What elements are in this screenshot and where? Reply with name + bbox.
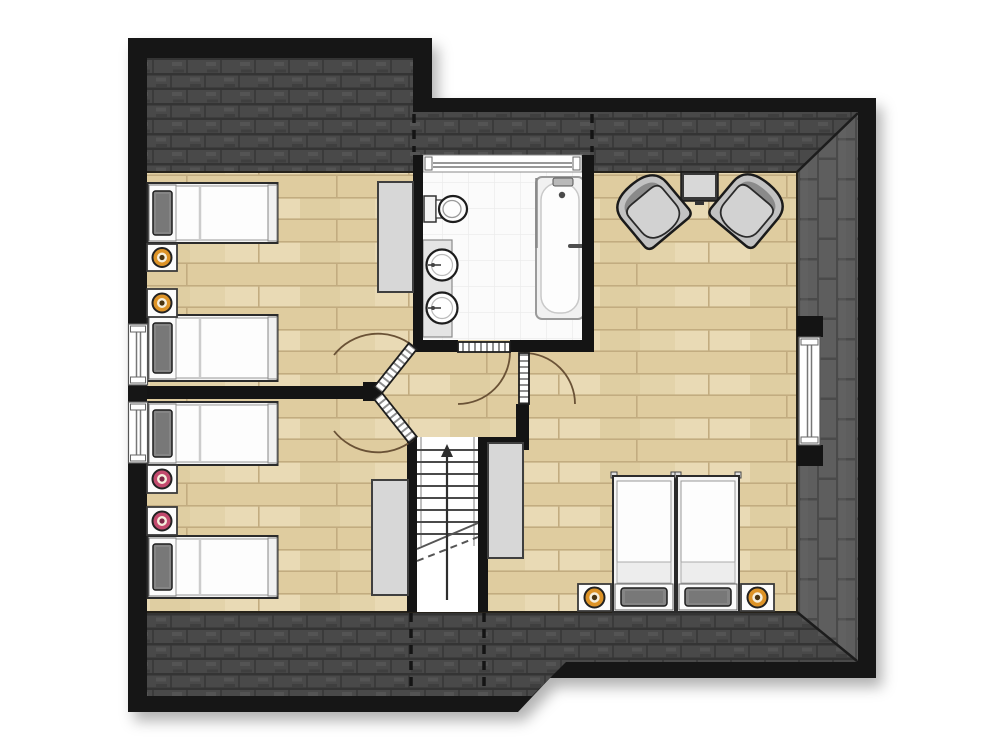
left-window-1 xyxy=(129,324,148,385)
stairwell-wall-right xyxy=(478,437,488,612)
tv-on-stand xyxy=(681,172,718,205)
single-bed-3 xyxy=(148,402,278,465)
washbasin-2 xyxy=(427,293,458,324)
bathtub-drain xyxy=(559,192,565,198)
bedroom-divider-wall xyxy=(147,386,381,399)
left-window-2 xyxy=(129,402,148,463)
bathtub xyxy=(536,177,588,319)
roof-bottom-tiles xyxy=(147,612,857,696)
washbasin-1 xyxy=(427,250,458,281)
bathroom-window xyxy=(423,155,582,172)
single-bed-4 xyxy=(148,536,278,598)
bathroom-wall-bottom-left-segment xyxy=(413,340,458,352)
wardrobe-bedroom-upper-left xyxy=(378,182,413,292)
wardrobe-landing-left xyxy=(372,480,408,595)
nightstand-pink-1 xyxy=(147,465,177,493)
master-bed-right xyxy=(675,472,741,612)
master-bed-left xyxy=(611,472,677,612)
nightstand-pink-2 xyxy=(147,507,177,535)
single-bed-2 xyxy=(148,315,278,381)
staircase xyxy=(417,437,478,612)
floor-plan-drawing xyxy=(0,0,1000,750)
bathroom-wall-bottom-right-segment xyxy=(510,340,594,352)
wardrobe-landing-right xyxy=(488,443,523,558)
bathroom-wall-left xyxy=(413,155,423,352)
nightstand-orange-2 xyxy=(147,289,177,317)
nightstand-orange-1 xyxy=(147,244,177,271)
nightstand-master-right xyxy=(741,584,774,611)
room-bathroom xyxy=(413,155,594,352)
nightstand-master-left xyxy=(578,584,611,611)
bathroom-wall-right xyxy=(582,155,594,352)
toilet xyxy=(424,196,467,222)
single-bed-1 xyxy=(148,183,278,243)
right-window xyxy=(797,316,823,466)
floor-plan-page xyxy=(0,0,1000,750)
